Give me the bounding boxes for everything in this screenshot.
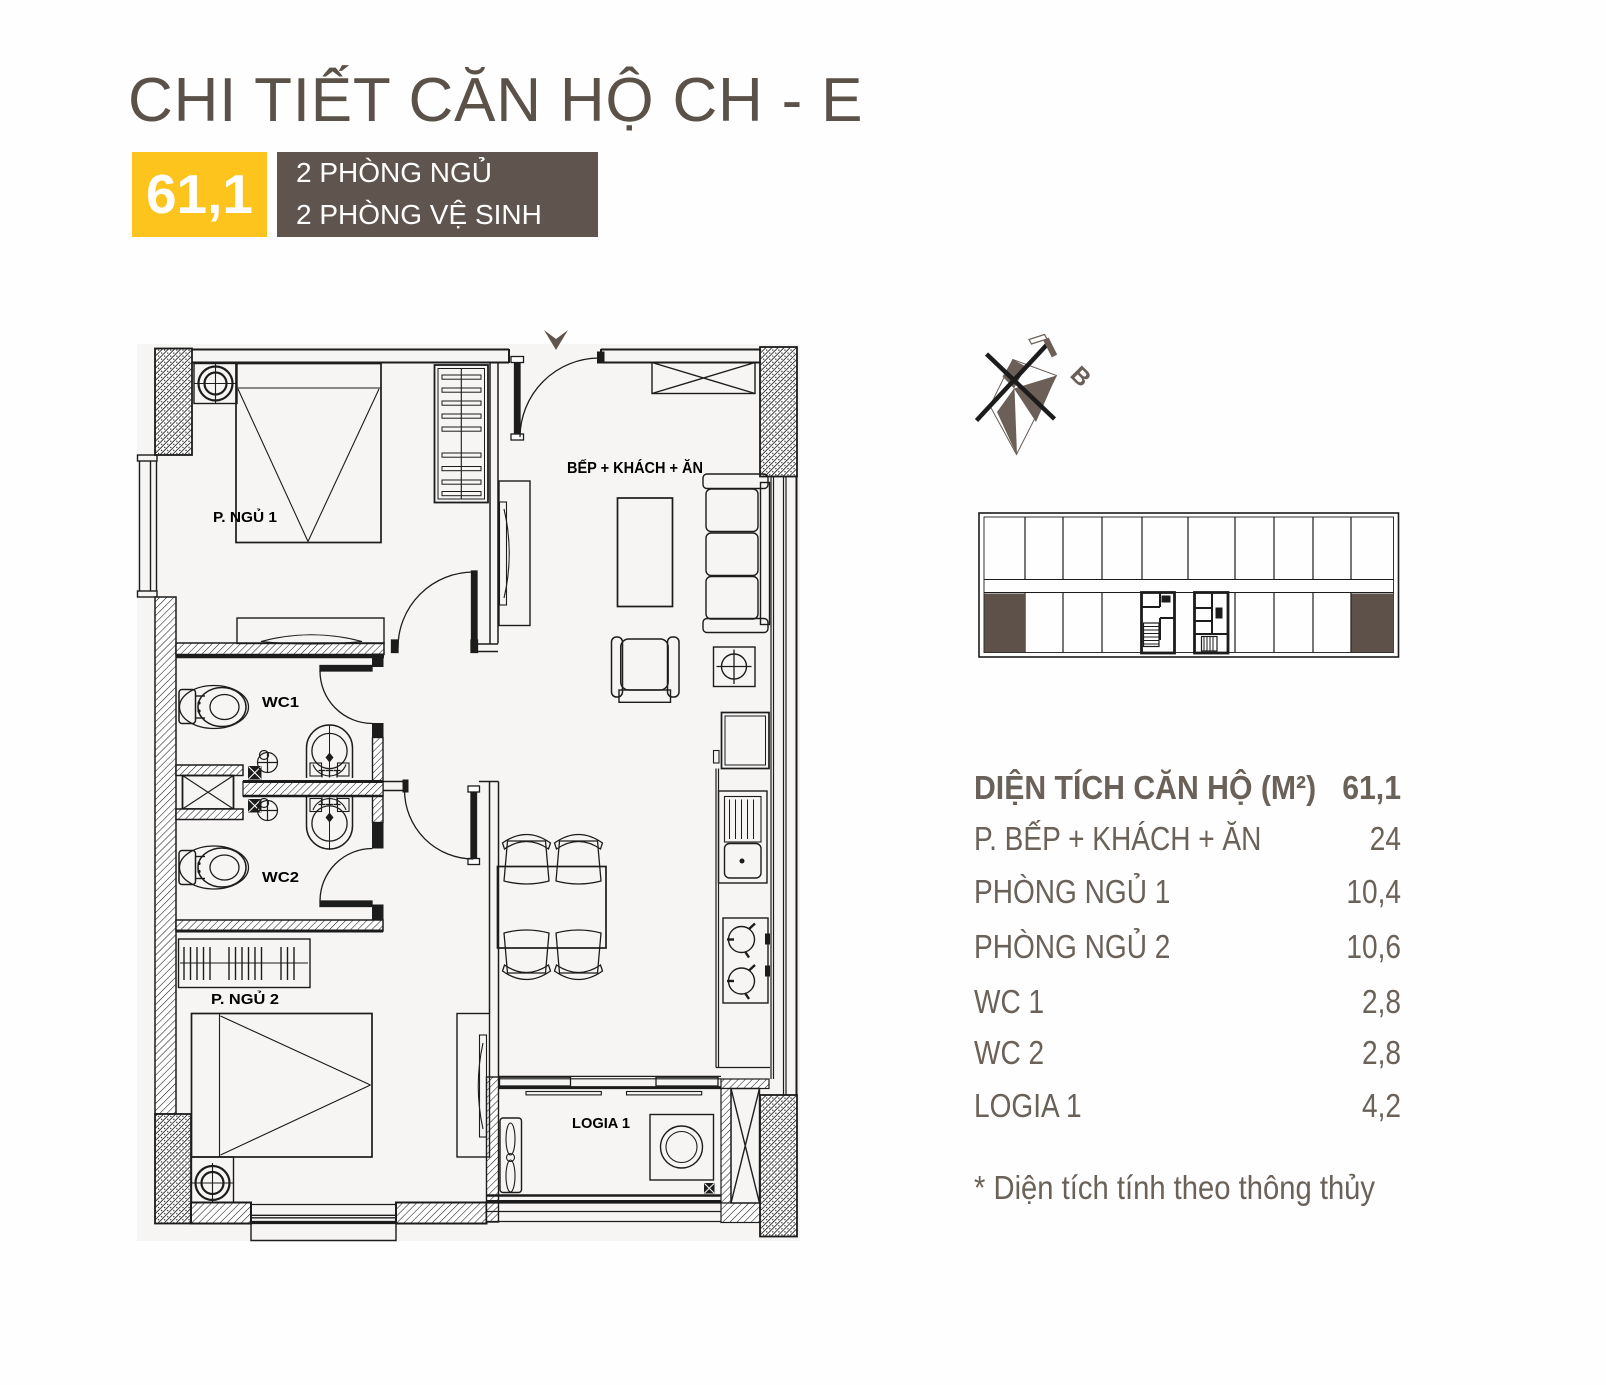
svg-text:P. NGỦ 1: P. NGỦ 1 xyxy=(213,508,277,526)
svg-text:P. NGỦ 2: P. NGỦ 2 xyxy=(211,990,279,1008)
svg-text:BẾP + KHÁCH + ĂN: BẾP + KHÁCH + ĂN xyxy=(567,460,703,477)
svg-text:B: B xyxy=(1065,361,1096,392)
svg-text:WC1: WC1 xyxy=(262,694,299,711)
svg-text:LOGIA 1: LOGIA 1 xyxy=(572,1115,630,1132)
svg-text:WC2: WC2 xyxy=(262,869,299,886)
